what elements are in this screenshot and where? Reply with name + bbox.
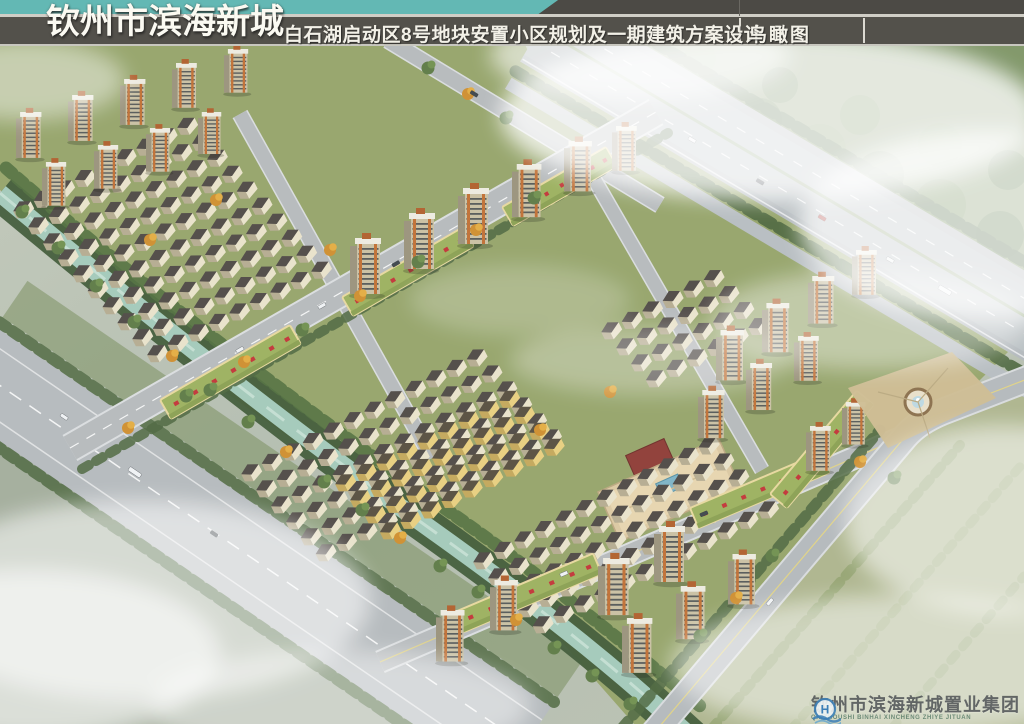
watermark-text: 钦州市滨海新城置业集团 QINZHOUSHI BINHAI XINCHENG Z… [811, 696, 1020, 722]
title-divider-2 [863, 18, 865, 43]
atmosphere-veil [0, 0, 1024, 724]
view-label: 鸟瞰图 [748, 20, 811, 47]
project-name: 钦州市滨海新城 [46, 1, 284, 43]
watermark: H 钦州市滨海新城置业集团 QINZHOUSHI BINHAI XINCHENG… [811, 696, 1020, 722]
presentation-board: 钦州市滨海新城 白石湖启动区8号地块安置小区规划及一期建筑方案设计 鸟瞰图 H … [0, 0, 1024, 724]
company-name: 钦州市滨海新城置业集团 [811, 696, 1020, 715]
company-logo-icon: H [811, 697, 841, 724]
plan-subtitle: 白石湖启动区8号地块安置小区规划及一期建筑方案设计 [284, 20, 763, 47]
title-bar-seam [739, 0, 740, 16]
company-tagline: QINZHOUSHI BINHAI XINCHENG ZHIYE JITUAN [811, 715, 1020, 722]
logo-letter: H [821, 703, 830, 717]
aerial-render [0, 0, 1024, 724]
title-bar: 钦州市滨海新城 白石湖启动区8号地块安置小区规划及一期建筑方案设计 鸟瞰图 [0, 0, 1024, 46]
